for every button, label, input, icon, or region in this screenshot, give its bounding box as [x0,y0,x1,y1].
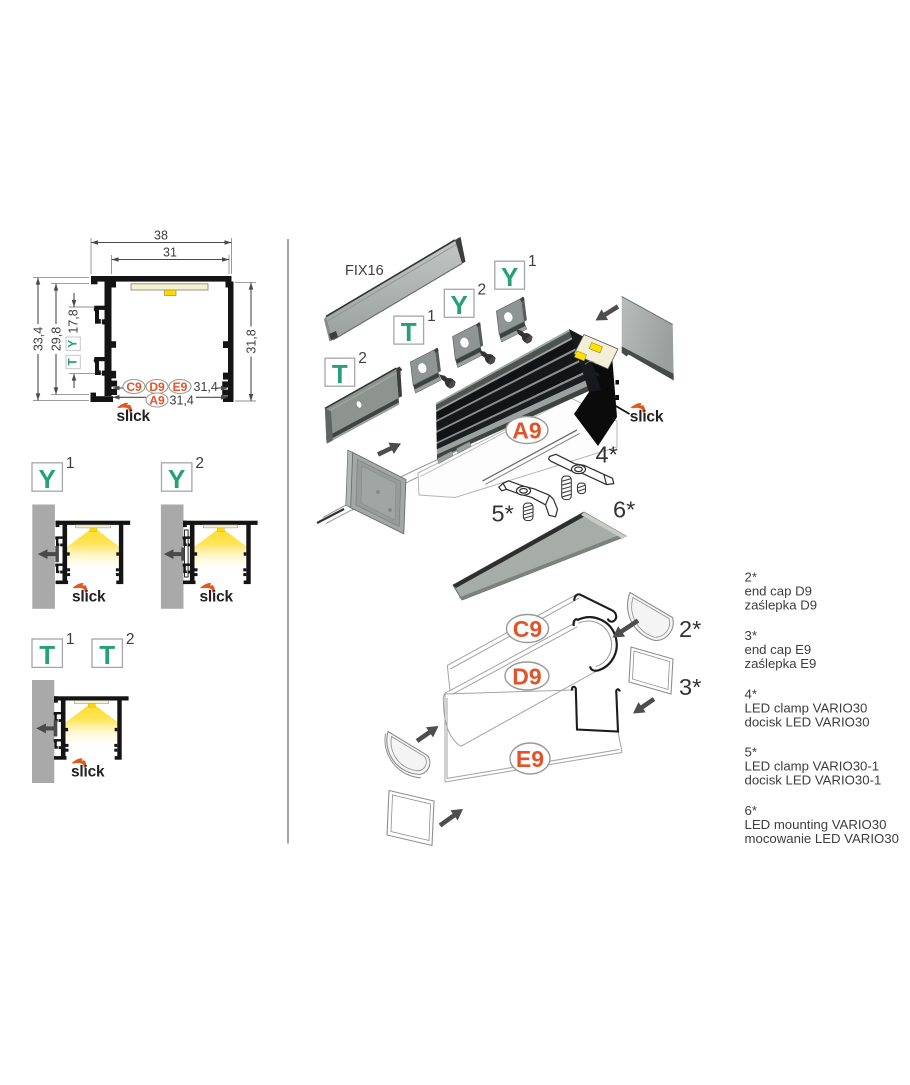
svg-text:6*: 6* [613,497,635,523]
svg-text:T: T [99,640,115,670]
svg-text:5*: 5* [492,501,514,527]
svg-text:E9: E9 [173,380,188,394]
svg-text:31,8: 31,8 [245,329,259,353]
svg-text:1: 1 [427,308,436,325]
svg-text:3*: 3* [745,628,757,643]
svg-text:C9: C9 [126,380,142,394]
svg-text:D9: D9 [512,663,541,689]
svg-text:LED clamp VARIO30-1: LED clamp VARIO30-1 [745,759,880,774]
svg-text:31,4: 31,4 [194,380,218,394]
svg-text:end cap E9: end cap E9 [745,642,812,657]
svg-text:docisk LED VARIO30-1: docisk LED VARIO30-1 [745,773,882,788]
svg-text:T: T [332,359,348,389]
svg-text:D9: D9 [149,380,165,394]
svg-text:2: 2 [126,631,135,648]
svg-text:2: 2 [358,350,367,367]
svg-text:Y: Y [39,464,56,494]
svg-text:T: T [65,358,79,366]
svg-text:zaślepka E9: zaślepka E9 [745,656,817,671]
svg-text:4*: 4* [745,686,757,701]
svg-text:E9: E9 [516,746,544,772]
svg-text:A9: A9 [149,393,165,407]
svg-text:4*: 4* [596,442,618,468]
svg-text:1: 1 [66,631,75,648]
svg-text:2*: 2* [679,616,701,642]
svg-text:Y: Y [501,262,518,292]
svg-text:31,4: 31,4 [170,394,194,408]
svg-text:FIX16: FIX16 [345,263,384,279]
svg-text:6*: 6* [745,803,757,818]
svg-text:mocowanie LED VARIO30: mocowanie LED VARIO30 [745,831,899,846]
svg-text:3*: 3* [679,674,701,700]
svg-text:T: T [401,317,417,347]
svg-text:A9: A9 [512,417,541,443]
svg-text:29,8: 29,8 [50,327,64,351]
svg-text:2: 2 [195,455,204,472]
svg-text:38: 38 [154,229,168,243]
svg-text:Y: Y [450,290,467,320]
svg-text:1: 1 [66,455,75,472]
svg-text:docisk LED VARIO30: docisk LED VARIO30 [745,714,870,729]
svg-text:1: 1 [528,253,537,270]
svg-text:zaślepka D9: zaślepka D9 [745,598,818,613]
svg-text:Y: Y [168,464,185,494]
svg-text:LED mounting VARIO30: LED mounting VARIO30 [745,817,887,832]
svg-text:33,4: 33,4 [32,327,46,351]
svg-text:T: T [39,640,55,670]
svg-text:5*: 5* [745,745,757,760]
svg-text:2: 2 [478,281,487,298]
svg-text:C9: C9 [513,616,542,642]
svg-text:LED clamp VARIO30: LED clamp VARIO30 [745,700,868,715]
svg-text:2*: 2* [745,570,757,585]
svg-text:31: 31 [163,246,177,260]
svg-text:Y: Y [65,340,79,348]
svg-text:17,8: 17,8 [67,309,81,333]
svg-text:end cap D9: end cap D9 [745,584,812,599]
